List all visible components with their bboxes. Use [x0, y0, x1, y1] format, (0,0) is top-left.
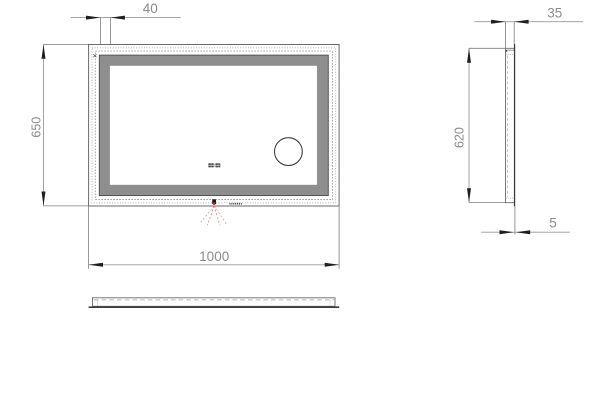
svg-text:5: 5	[549, 215, 557, 230]
svg-text:40: 40	[143, 1, 158, 16]
svg-text:1000: 1000	[199, 249, 229, 264]
svg-text:620: 620	[452, 127, 466, 148]
svg-text:650: 650	[29, 117, 43, 138]
svg-text:35: 35	[547, 6, 562, 21]
